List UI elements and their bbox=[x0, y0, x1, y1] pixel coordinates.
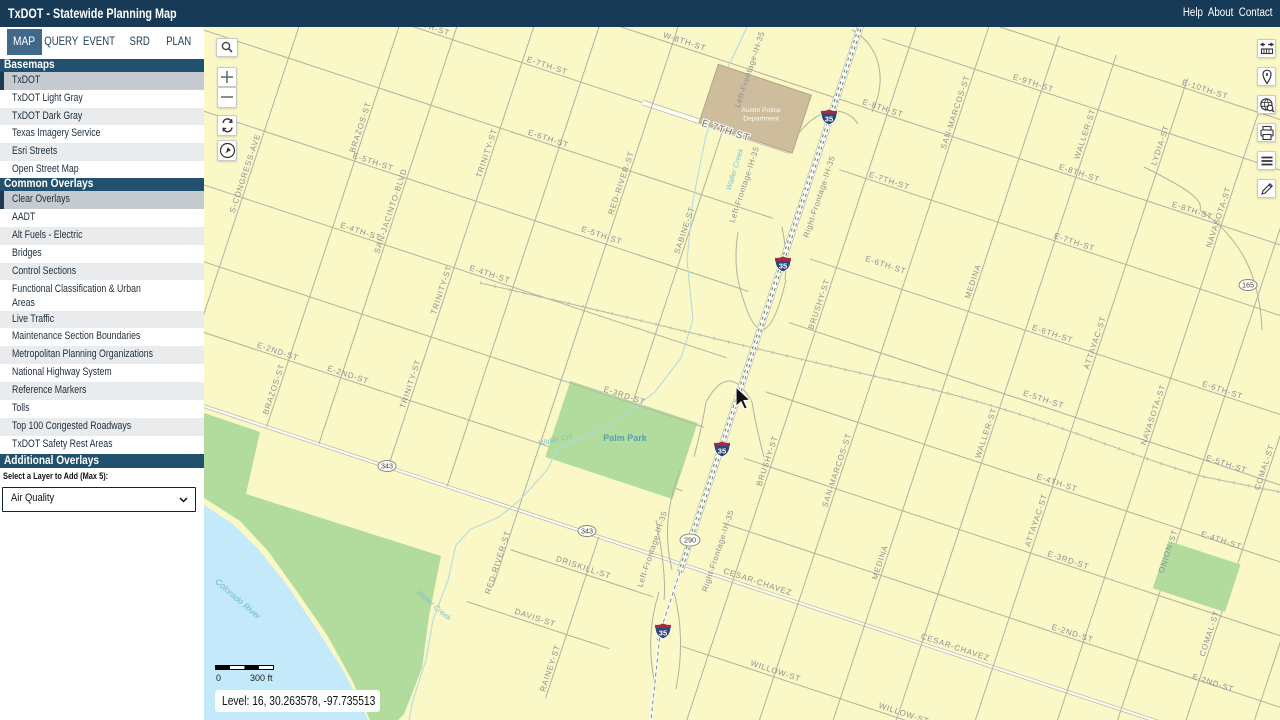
svg-text:Austin Police: Austin Police bbox=[741, 107, 781, 114]
svg-text:35: 35 bbox=[718, 447, 727, 456]
svg-text:343: 343 bbox=[381, 462, 393, 471]
svg-text:35: 35 bbox=[825, 115, 834, 124]
svg-text:Department: Department bbox=[743, 116, 779, 123]
svg-text:290: 290 bbox=[684, 536, 696, 545]
svg-text:343: 343 bbox=[581, 527, 593, 536]
svg-text:Palm Park: Palm Park bbox=[603, 433, 648, 443]
svg-text:35: 35 bbox=[659, 629, 668, 638]
svg-text:35: 35 bbox=[779, 262, 788, 271]
svg-text:165: 165 bbox=[1242, 281, 1254, 290]
